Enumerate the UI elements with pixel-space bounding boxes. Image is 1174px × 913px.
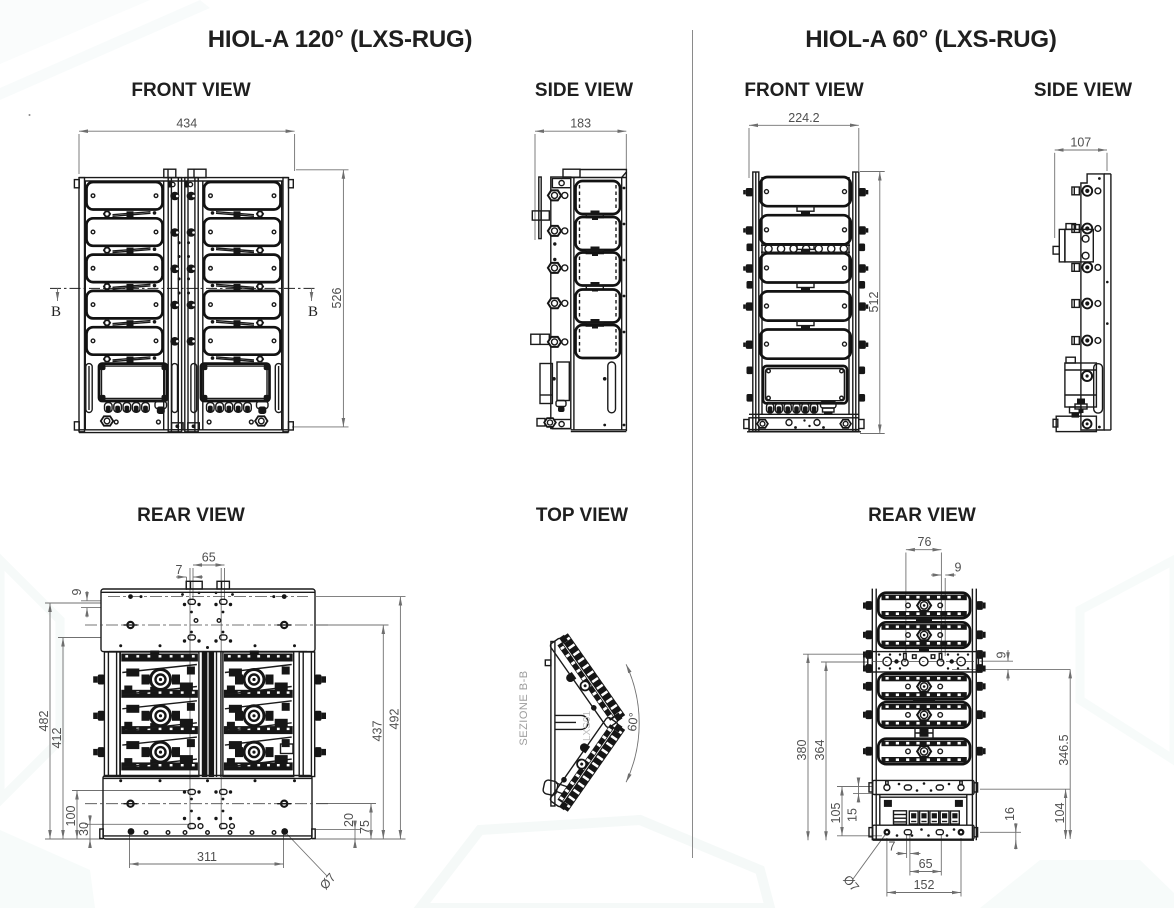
svg-text:76: 76 [918,535,932,549]
svg-text:FRONT VIEW: FRONT VIEW [131,80,250,101]
svg-text:364: 364 [813,740,827,761]
svg-text:9: 9 [955,561,962,575]
svg-text:9: 9 [70,588,84,595]
svg-text:B: B [51,304,61,320]
svg-text:HIOL-A 60° (LXS-RUG): HIOL-A 60° (LXS-RUG) [805,26,1056,53]
svg-text:REAR VIEW: REAR VIEW [137,505,245,526]
svg-text:65: 65 [202,551,216,565]
svg-text:20: 20 [342,813,356,827]
svg-text:15: 15 [846,808,860,822]
svg-text:100: 100 [64,806,78,827]
svg-text:SIDE VIEW: SIDE VIEW [1034,80,1132,101]
svg-text:SEZIONE B-B: SEZIONE B-B [518,670,530,745]
svg-text:437: 437 [371,721,385,742]
svg-text:TOP VIEW: TOP VIEW [536,505,628,526]
svg-text:7: 7 [889,840,896,854]
svg-text:107: 107 [1070,136,1091,150]
svg-text:104: 104 [1053,803,1067,824]
svg-text:9: 9 [995,651,1009,658]
svg-text:7: 7 [176,563,183,577]
svg-text:B: B [308,304,318,320]
svg-text:65: 65 [919,857,933,871]
svg-text:183: 183 [570,117,591,131]
svg-text:346.5: 346.5 [1057,734,1071,765]
svg-text:492: 492 [388,709,402,730]
svg-text:311: 311 [197,850,217,864]
svg-text:224.2: 224.2 [788,111,819,125]
svg-text:HIOL-A 120° (LXS-RUG): HIOL-A 120° (LXS-RUG) [208,26,473,53]
svg-text:REAR VIEW: REAR VIEW [868,505,976,526]
svg-text:FRONT VIEW: FRONT VIEW [744,80,863,101]
svg-text:30: 30 [77,822,91,836]
svg-text:434: 434 [176,117,197,131]
svg-text:105: 105 [829,803,843,824]
svg-text:75: 75 [358,820,372,834]
svg-text:526: 526 [330,288,344,309]
svg-text:380: 380 [795,740,809,761]
svg-text:412: 412 [50,728,64,749]
svg-text:512: 512 [867,292,881,313]
svg-text:SIDE VIEW: SIDE VIEW [535,80,633,101]
svg-text:152: 152 [914,878,935,892]
svg-text:482: 482 [37,711,51,732]
svg-text:16: 16 [1003,807,1017,821]
svg-text:LXS01: LXS01 [582,711,593,741]
svg-text:60°: 60° [625,712,641,732]
